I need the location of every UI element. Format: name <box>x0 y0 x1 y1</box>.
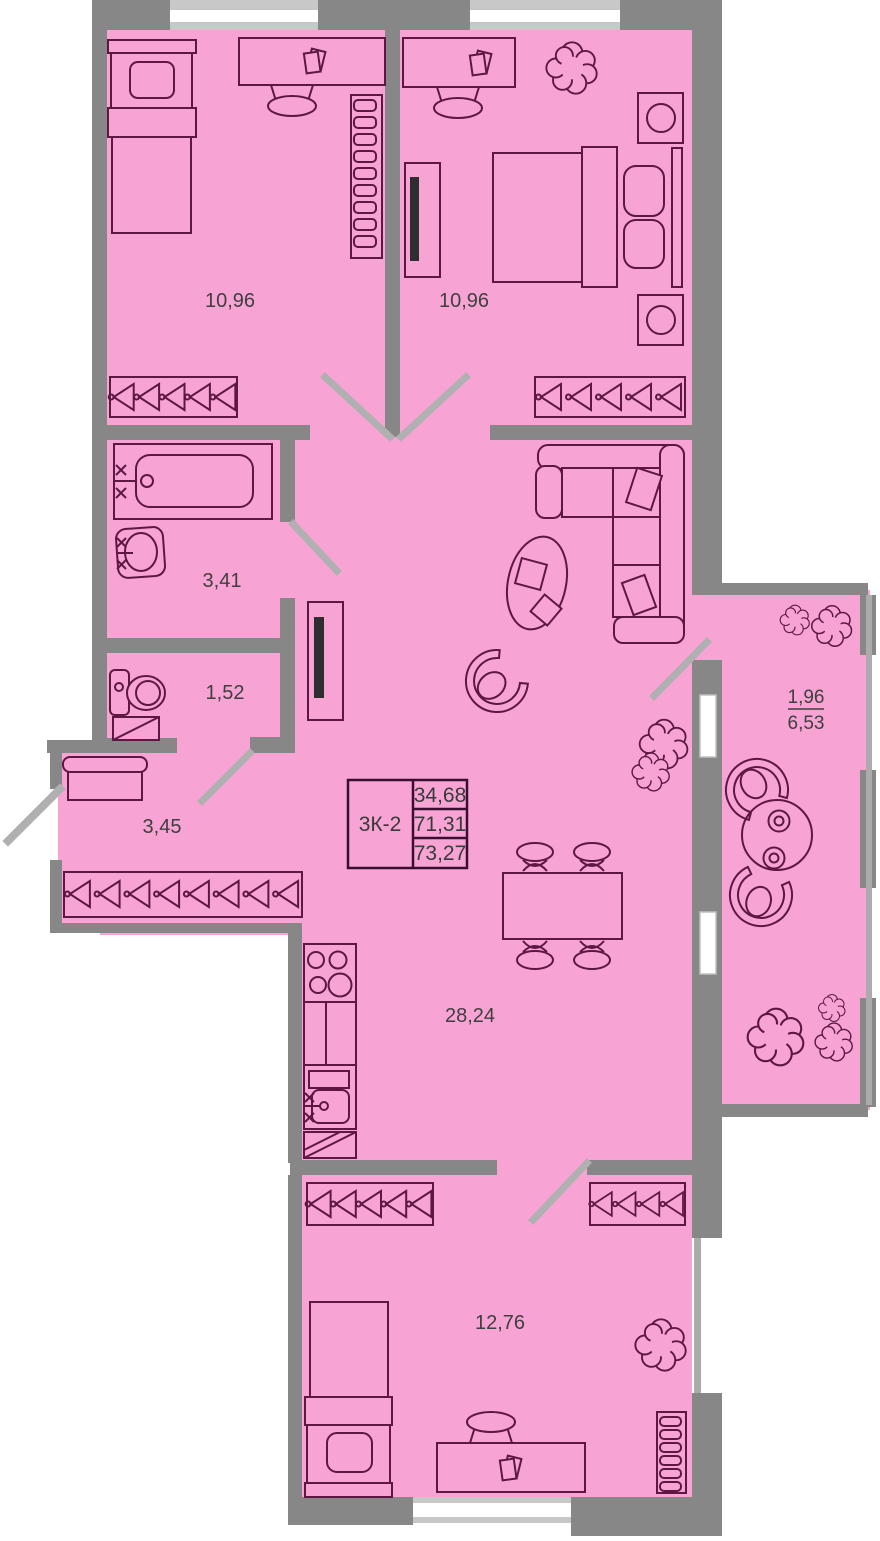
dining-table-icon <box>503 873 622 939</box>
single-bed-icon <box>305 1302 392 1497</box>
area-label-bedroom-left: 10,96 <box>205 290 255 312</box>
area-label-living: 28,24 <box>445 1005 495 1027</box>
window-bedroom-bottom <box>413 1497 571 1523</box>
area-label-balcony-coefficient: 1,96 <box>788 687 825 708</box>
mirror-cabinet-icon <box>308 602 343 720</box>
area-label-bedroom-bottom: 12,76 <box>475 1312 525 1334</box>
area-label-bedroom-right: 10,96 <box>439 290 489 312</box>
desk-chair-icon <box>268 85 316 116</box>
desk-icon <box>403 38 515 87</box>
window-bedroom-bottom-side <box>692 1238 722 1393</box>
washing-machine-icon <box>113 717 159 740</box>
summary-area-2: 71,31 <box>414 813 467 836</box>
wardrobe-icon <box>535 377 685 417</box>
nightstand-icon <box>638 93 683 143</box>
desk-icon <box>239 38 385 85</box>
balcony-glazing <box>866 595 872 1105</box>
shelf-icon <box>351 95 382 258</box>
floorplan-page: 10,96 10,96 3,41 1,52 3,45 28,24 12,76 1… <box>0 0 880 1536</box>
desk-chair-icon <box>467 1412 515 1443</box>
desk-icon <box>437 1443 585 1492</box>
balcony-table-icon <box>742 800 812 870</box>
wardrobe-icon <box>64 872 302 917</box>
bathtub-icon <box>114 444 272 519</box>
summary-area-1: 34,68 <box>414 784 467 807</box>
area-label-hallway: 3,45 <box>143 816 182 838</box>
tv-cabinet-icon <box>405 163 440 277</box>
bench-icon <box>63 757 147 800</box>
floorplan-drawing: 10,96 10,96 3,41 1,52 3,45 28,24 12,76 1… <box>0 0 880 1536</box>
window-living-balcony-2 <box>700 912 716 974</box>
corner-cabinet-icon <box>304 1132 356 1158</box>
wardrobe-icon <box>109 377 237 417</box>
room-floors <box>58 25 870 1500</box>
window-bedroom-left <box>170 0 318 30</box>
desk-chair-icon <box>434 87 482 118</box>
window-living-balcony-1 <box>700 695 716 757</box>
summary-area-3: 73,27 <box>414 842 467 865</box>
window-bedroom-right <box>470 0 620 30</box>
kitchen-sink-icon <box>304 1065 356 1129</box>
stove-icon <box>304 944 356 1002</box>
area-label-wc: 1,52 <box>206 682 245 704</box>
radiator-icon <box>657 1412 686 1493</box>
wardrobe-icon <box>306 1183 433 1225</box>
wardrobe-icon <box>589 1183 685 1225</box>
single-bed-icon <box>108 40 196 233</box>
area-label-bathroom: 3,41 <box>203 570 242 592</box>
nightstand-icon <box>638 295 683 345</box>
door-swing-entrance <box>8 789 60 841</box>
unit-name-label: 3К-2 <box>359 813 402 836</box>
kitchen-cabinet-icon <box>304 1002 356 1065</box>
area-label-balcony: 6,53 <box>788 713 825 734</box>
sink-icon <box>115 526 165 578</box>
